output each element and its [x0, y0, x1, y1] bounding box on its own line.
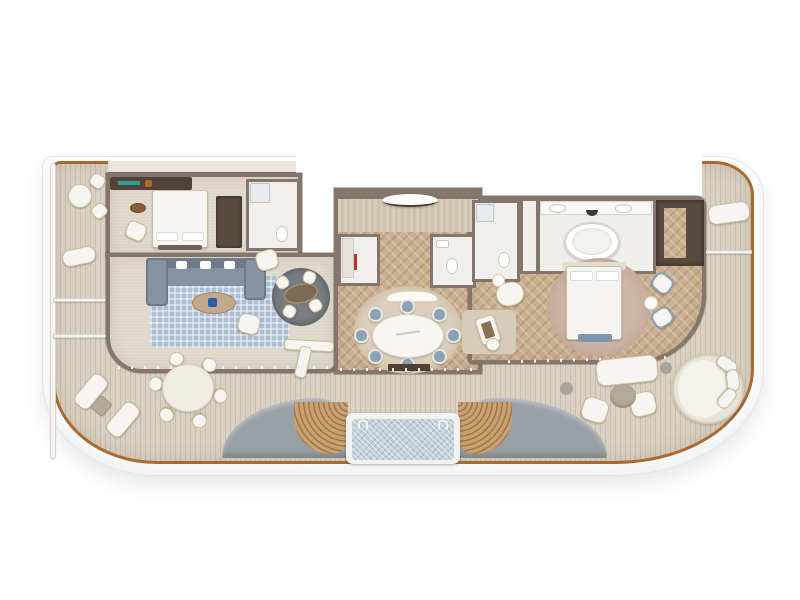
top-notch-1 [296, 150, 336, 256]
reading-table [492, 274, 505, 287]
coffee-table-decor [208, 298, 217, 307]
balcony-round-table [68, 184, 92, 208]
tub-interior [572, 228, 612, 255]
master-wc [498, 252, 510, 268]
starboard-divider [706, 250, 752, 254]
bath-partition [536, 200, 540, 272]
pillow [182, 232, 204, 241]
foot-bench [578, 334, 612, 342]
dining-chair [354, 328, 369, 343]
top-notch-2 [334, 150, 484, 190]
round-ottoman [610, 384, 636, 408]
dining-chair [432, 349, 447, 364]
dining-chair [432, 307, 447, 322]
shower [250, 183, 270, 203]
desk-chair [486, 338, 500, 351]
floor-plan-canvas [0, 0, 800, 600]
dining-table [372, 314, 444, 358]
guest-sink [436, 240, 449, 248]
pillow [570, 271, 593, 281]
outdoor-side-table [660, 362, 672, 374]
bed-foot-bench [158, 245, 202, 250]
sofa-pillow [224, 261, 235, 269]
sink-left [549, 204, 566, 213]
living-window-band [118, 366, 330, 369]
vanity-accessory-orange [145, 180, 152, 187]
balcony-divider-2 [53, 334, 109, 338]
pillow [596, 271, 619, 281]
outdoor-dining-table [162, 364, 214, 412]
balcony-divider-1 [53, 298, 107, 302]
dining-chair [368, 349, 383, 364]
entry-console [382, 194, 438, 207]
dining-chair [368, 307, 383, 322]
bedroom-wardrobe [216, 196, 242, 248]
closet-floor [664, 208, 686, 258]
pantry-cabinet [342, 238, 354, 278]
sofa-pillow [200, 261, 211, 269]
top-notch-4 [494, 150, 702, 196]
sofa-left-chaise [146, 258, 168, 306]
dining-window-band [340, 368, 478, 371]
pillow [156, 232, 178, 241]
guest-toilet [446, 258, 458, 274]
port-rail [50, 163, 56, 459]
master-shower [476, 204, 494, 222]
round-side-table [644, 296, 658, 310]
pool-ladder-right [438, 420, 448, 429]
vanity-accessory-teal [118, 181, 140, 185]
daybed-mattress [678, 360, 728, 418]
toilet [276, 226, 288, 242]
dining-chair [446, 328, 461, 343]
pouf [130, 203, 146, 213]
outdoor-side-table [560, 382, 573, 395]
pool-ladder-left [358, 420, 368, 429]
sink-right [615, 204, 632, 213]
dining-chair [400, 299, 415, 314]
sofa-pillow [176, 261, 187, 269]
